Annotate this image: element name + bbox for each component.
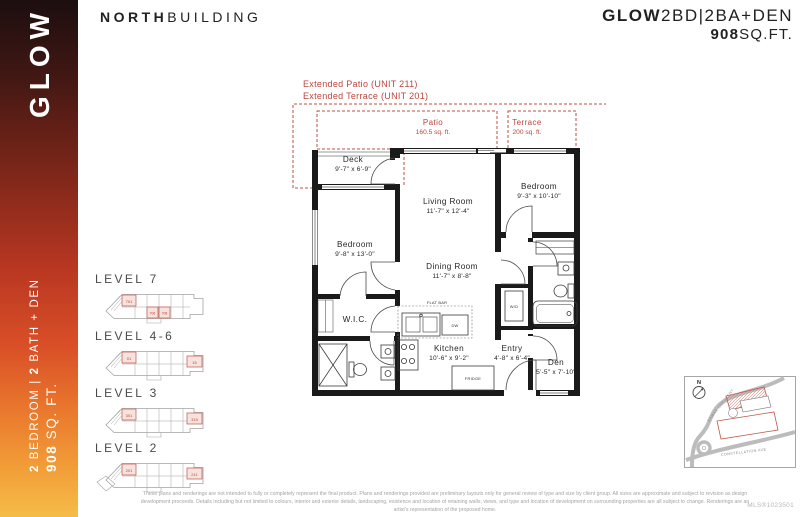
extended-patio-dashed-outline: [293, 104, 606, 188]
den-dims: 5'-5" x 7'-10": [536, 369, 576, 376]
floorplan-sheet: { "header": { "building_bold": "NORTH", …: [0, 0, 800, 517]
unit-number: 701: [126, 299, 133, 304]
disclaimer-line-2: development proceeds. Details including …: [105, 499, 785, 507]
bedroom-right-label: Bedroom: [521, 182, 557, 191]
unit-number: 15: [192, 360, 197, 365]
unit-sqft-vertical: 908 SQ. FT.: [44, 382, 59, 472]
disclaimer-line-1: These plans and renderings are not inten…: [105, 491, 785, 499]
level-2-title: LEVEL 2: [95, 441, 213, 455]
dining-room-label: Dining Room: [426, 262, 478, 271]
entry-dims: 4'-8" x 6'-4": [494, 355, 530, 362]
unit-number: 211: [191, 472, 198, 477]
fridge-label: FRIDGE: [465, 376, 481, 381]
brand-sidebar: GLOW 2 BEDROOM | 2 BATH + DEN 908 SQ. FT…: [0, 0, 78, 517]
level-7-title: LEVEL 7: [95, 272, 213, 286]
unit-number: 706: [150, 312, 156, 316]
living-room-dims: 11'-7" x 12'-4": [426, 208, 470, 215]
kitchen-dims: 10'-6" x 9'-2": [429, 355, 469, 362]
terrace-label: Terrace: [512, 118, 542, 127]
plan-sqft-line: 908SQ.FT.: [602, 25, 793, 44]
level-3-keyplan: LEVEL 3 301 315: [95, 386, 213, 447]
den-label: Den: [548, 358, 564, 367]
bedroom-left-label: Bedroom: [337, 240, 373, 249]
wd-label: W/D: [510, 304, 518, 309]
level-4-6-keyplan: LEVEL 4-6 01 15: [95, 329, 213, 390]
sink-ensuite-1: [381, 345, 395, 358]
bedroom-right-dims: 9'-3" x 10'-10": [517, 193, 561, 200]
unit-number: 01: [127, 356, 132, 361]
patio-label: Patio: [423, 118, 443, 127]
level-4-6-title: LEVEL 4-6: [95, 329, 213, 343]
living-room-label: Living Room: [423, 197, 473, 206]
level-7-plan: 701 706 708: [95, 288, 207, 328]
flat-bar-label: FLAT BAR: [427, 300, 447, 305]
counter-overhang: [398, 306, 472, 338]
unit-number: 201: [126, 468, 133, 473]
toilet-tank-bath2: [568, 284, 574, 298]
floorplan-drawing: Patio 160.5 sq. ft. Terrace 200 sq. ft.: [286, 100, 606, 400]
legal-disclaimer: These plans and renderings are not inten…: [105, 491, 785, 514]
toilet-ensuite: [354, 364, 367, 376]
disclaimer-line-3: artist's representation of the proposed …: [105, 507, 785, 515]
level-4-6-plan: 01 15: [95, 345, 207, 385]
plan-title: GLOW2BD|2BA+DEN 908SQ.FT.: [602, 6, 793, 44]
site-map: N SAMAR CRESCENT CONSTELLATION AVE: [684, 376, 796, 468]
level-7-keyplan: LEVEL 7 701 706 708: [95, 272, 213, 333]
level-3-plan: 301 315: [95, 402, 207, 442]
kitchen-label: Kitchen: [434, 344, 464, 353]
level-3-title: LEVEL 3: [95, 386, 213, 400]
toilet-bath2: [554, 285, 567, 297]
roundabout: [698, 442, 710, 454]
patio-area: 160.5 sq. ft.: [416, 129, 451, 136]
deck-label: Deck: [343, 155, 364, 164]
unit-number: 315: [191, 417, 198, 422]
building-title: NORTHBUILDING: [100, 9, 261, 25]
compass-north-label: N: [697, 380, 701, 386]
extended-outdoor-annotation: Extended Patio (UNIT 211) Extended Terra…: [303, 79, 428, 102]
bedroom-left-dims: 9'-8" x 13'-0": [335, 251, 375, 258]
mls-number: MLS®1023501: [747, 502, 794, 509]
sink-ensuite-2: [381, 367, 395, 380]
unit-number: 301: [126, 413, 133, 418]
courtyard-circle: [729, 409, 738, 418]
entry-label: Entry: [501, 344, 523, 353]
dw-label: DW: [451, 323, 458, 328]
unit-number: 708: [162, 312, 168, 316]
plan-type-line: GLOW2BD|2BA+DEN: [602, 6, 793, 25]
brand-name-vertical: GLOW: [24, 7, 56, 118]
deck-dims: 9'-7" x 6'-9": [335, 166, 371, 173]
wic-label: W.I.C.: [343, 315, 368, 324]
stove: [398, 340, 418, 370]
dining-room-dims: 11'-7" x 8'-8": [432, 273, 472, 280]
annotation-line-1: Extended Patio (UNIT 211): [303, 79, 428, 91]
sink-bath2: [558, 262, 574, 275]
terrace-area: 200 sq. ft.: [513, 129, 542, 136]
unit-spec-vertical: 2 BEDROOM | 2 BATH + DEN: [29, 278, 41, 472]
